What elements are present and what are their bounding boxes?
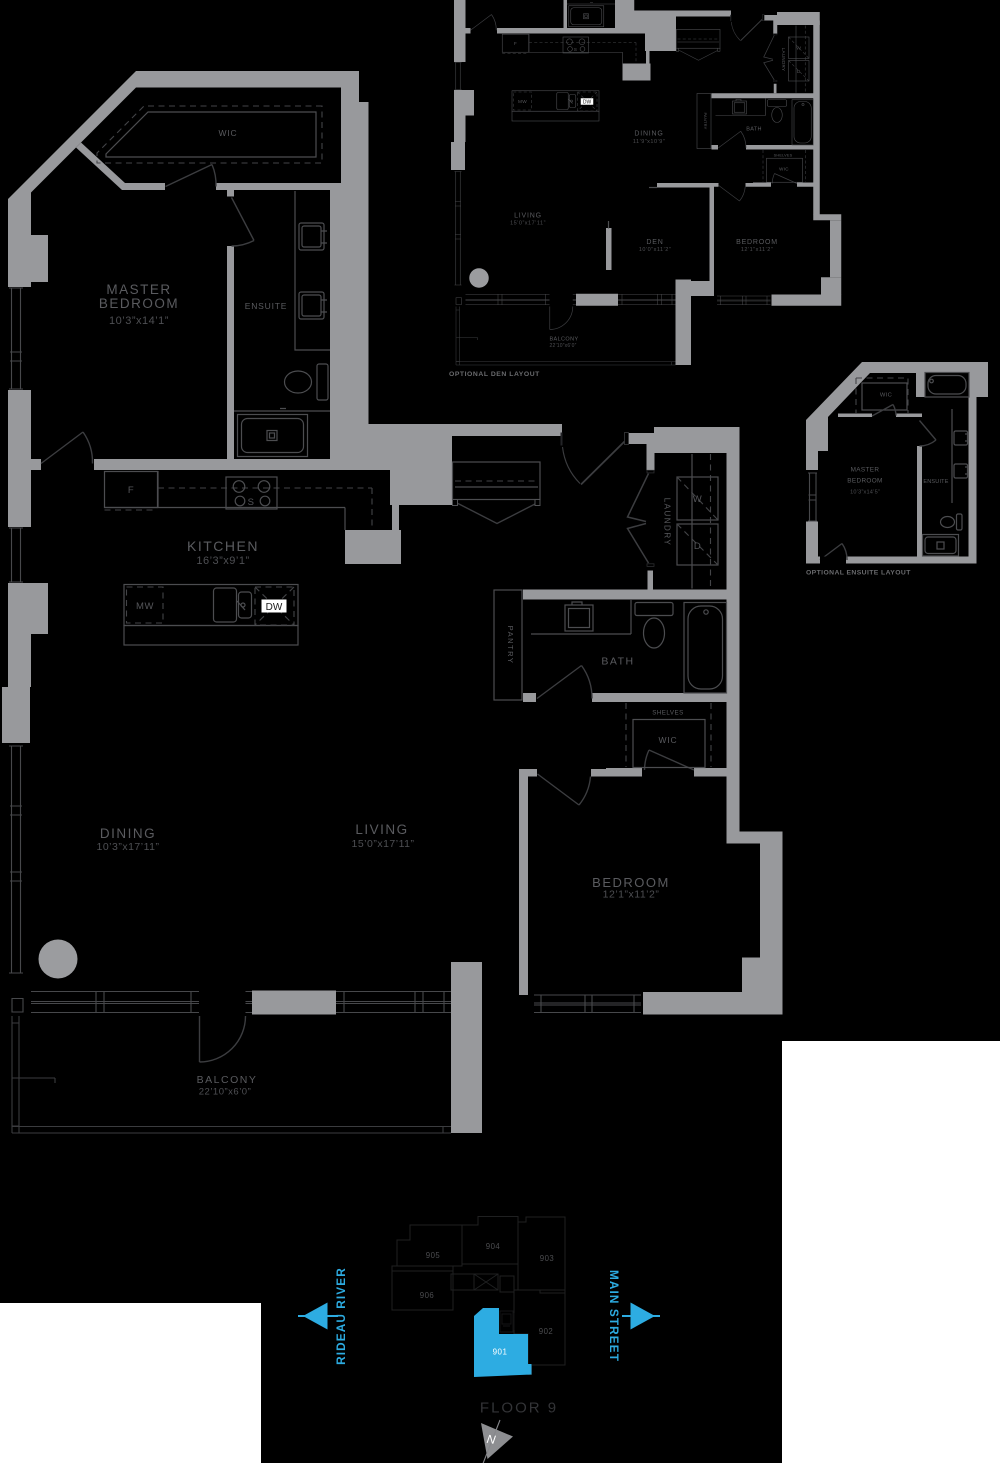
svg-text:15’0”x17’11”: 15’0”x17’11” [510,221,546,227]
svg-text:DINING: DINING [100,826,156,841]
svg-text:LIVING: LIVING [355,822,408,837]
svg-text:BATH: BATH [746,127,761,133]
svg-text:903: 903 [540,1254,555,1263]
svg-text:902: 902 [539,1327,554,1336]
svg-text:OPTIONAL DEN LAYOUT: OPTIONAL DEN LAYOUT [449,371,540,378]
svg-text:PANTRY: PANTRY [703,112,708,129]
svg-text:FLOOR 9: FLOOR 9 [480,1400,558,1417]
svg-text:BEDROOM: BEDROOM [847,478,882,485]
svg-text:904: 904 [486,1242,501,1251]
svg-text:LIVING: LIVING [514,213,542,220]
svg-text:BATH: BATH [601,656,634,668]
svg-text:OPTIONAL ENSUITE LAYOUT: OPTIONAL ENSUITE LAYOUT [806,570,911,577]
svg-text:10’3”x14’1”: 10’3”x14’1” [109,315,169,327]
svg-text:BALCONY: BALCONY [197,1074,258,1086]
svg-text:SHELVES: SHELVES [774,154,793,158]
svg-text:ENSUITE: ENSUITE [245,301,287,311]
svg-text:WIC: WIC [880,393,892,399]
svg-text:901: 901 [493,1348,508,1357]
svg-text:LAUNDRY: LAUNDRY [663,498,672,547]
svg-text:10’3”x14’5”: 10’3”x14’5” [850,490,880,496]
svg-text:PANTRY: PANTRY [506,626,515,665]
svg-text:12’1”x11’2”: 12’1”x11’2” [603,889,660,901]
svg-text:16’3”x9’1”: 16’3”x9’1” [196,555,249,567]
svg-text:BALCONY: BALCONY [549,337,578,343]
svg-text:15’0”x17’11”: 15’0”x17’11” [351,838,414,850]
svg-text:11’9”x10’9”: 11’9”x10’9” [633,139,665,145]
svg-text:DEN: DEN [646,239,663,246]
svg-text:22’10”x6’0”: 22’10”x6’0” [199,1087,252,1098]
svg-text:LAUNDRY: LAUNDRY [781,48,786,72]
svg-text:BEDROOM: BEDROOM [99,296,179,311]
svg-text:10’0”x11’2”: 10’0”x11’2” [639,247,671,253]
svg-text:WIC: WIC [219,128,238,138]
svg-text:DINING: DINING [634,131,663,138]
svg-text:ENSUITE: ENSUITE [923,479,948,485]
svg-text:MASTER: MASTER [106,282,171,297]
svg-text:12’1”x11’2”: 12’1”x11’2” [741,247,773,253]
svg-text:BEDROOM: BEDROOM [736,239,778,246]
svg-text:MAIN STREET: MAIN STREET [607,1270,621,1362]
svg-text:10’3”x17’11”: 10’3”x17’11” [96,841,159,853]
svg-text:906: 906 [420,1291,435,1300]
svg-text:MASTER: MASTER [851,467,880,474]
svg-text:22’10”x6’0”: 22’10”x6’0” [550,343,577,349]
svg-text:905: 905 [426,1251,441,1260]
svg-text:WIC: WIC [779,167,789,172]
svg-text:WIC: WIC [659,735,678,745]
svg-text:KITCHEN: KITCHEN [187,538,259,554]
svg-text:SHELVES: SHELVES [652,710,684,717]
